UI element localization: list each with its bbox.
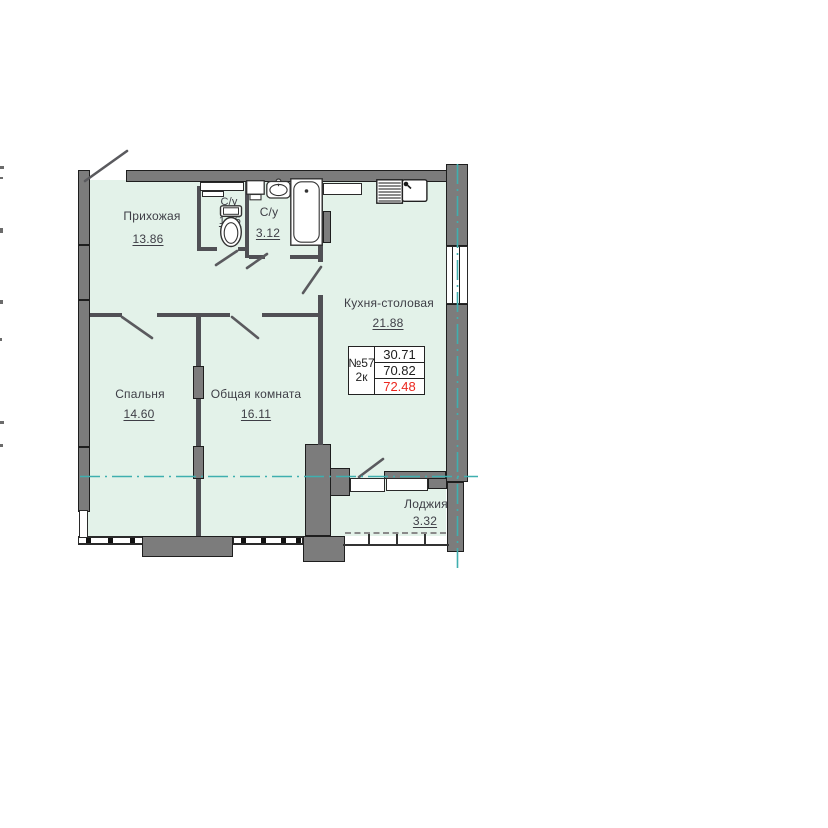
bedroom-door-swing xyxy=(122,317,152,338)
entrance-door-swing xyxy=(85,151,127,181)
living-area-value: 30.71 xyxy=(375,347,424,363)
annotation-overlay xyxy=(0,0,828,828)
apartment-rooms-count: 2к xyxy=(356,371,368,385)
balcony-door-swing xyxy=(359,459,383,477)
wc-large-door-swing xyxy=(247,254,267,268)
total-area-with-loggia-value: 72.48 xyxy=(375,379,424,394)
floor-plan: Прихожая 13.86 С/у 1.25 С/у 3.12 Кухня-с… xyxy=(0,0,828,828)
wc-small-door-swing xyxy=(216,251,237,265)
apartment-number: №57 xyxy=(348,357,374,371)
kitchen-door-swing xyxy=(303,267,321,293)
total-area-value: 70.82 xyxy=(375,363,424,379)
living-door-swing xyxy=(232,317,258,338)
apartment-info-table: №57 2к 30.71 70.82 72.48 xyxy=(348,346,425,395)
